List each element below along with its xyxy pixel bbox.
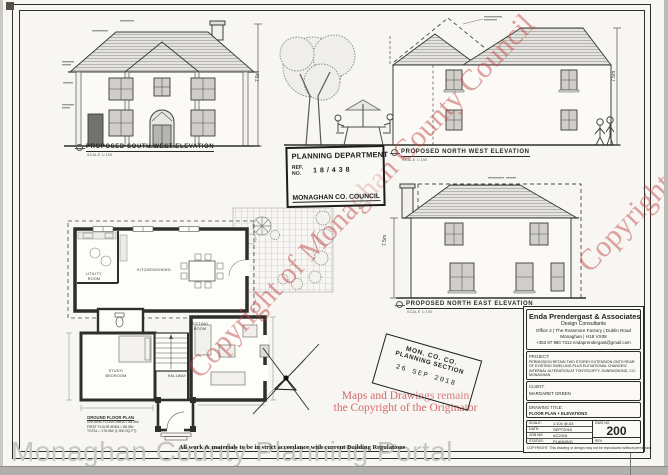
ne-elevation-caption: PROPOSED NORTH EAST ELEVATION bbox=[396, 301, 533, 309]
meta-label: DATE: bbox=[529, 427, 553, 431]
sw-elevation-label: PROPOSED SOUTH WEST ELEVATION bbox=[86, 144, 214, 152]
tree-icon bbox=[280, 35, 355, 100]
company-address1: Office 2 | The Rossmore Factory | Dublin… bbox=[529, 328, 638, 333]
client-label: CLIENT: bbox=[529, 384, 638, 389]
drawing-title-label: DRAWING TITLE: bbox=[529, 405, 638, 410]
stamp-ref-number: 18/438 bbox=[313, 167, 353, 175]
project-label: PROJECT: bbox=[529, 354, 638, 359]
title-block: Enda Prendergast & Associates Design Con… bbox=[523, 306, 644, 453]
drawing-title-text: FLOOR PLAN + ELEVATIONS bbox=[529, 411, 638, 416]
ne-elevation-label: PROPOSED NORTH EAST ELEVATION bbox=[406, 301, 533, 309]
project-description: PERMISSION RETAIN TWO STOREY EXTENSION O… bbox=[529, 360, 638, 378]
meta-value: SEPT2018 bbox=[553, 427, 572, 432]
nw-elevation-label: PROPOSED NORTH WEST ELEVATION bbox=[401, 149, 530, 157]
drawing-sheet: PROPOSED SOUTH WEST ELEVATION SCALE 1:10… bbox=[3, 0, 664, 466]
nw-elevation-caption: PROPOSED NORTH WEST ELEVATION bbox=[391, 149, 530, 157]
meta-label: STATUS: bbox=[529, 439, 553, 443]
building-regs-note: All work & materials to be in strict acc… bbox=[161, 444, 423, 451]
room-label-hallway: HALLWAY bbox=[161, 374, 193, 379]
title-block-project: PROJECT: PERMISSION RETAIN TWO STOREY EX… bbox=[526, 351, 641, 380]
datum-icon bbox=[396, 301, 403, 308]
north-west-elevation-drawing bbox=[278, 12, 623, 162]
title-block-company: Enda Prendergast & Associates Design Con… bbox=[526, 309, 641, 350]
company-name: Enda Prendergast & Associates bbox=[529, 312, 638, 321]
copyright-notice: Maps and Drawings remain the Copyright o… bbox=[303, 390, 508, 414]
room-label-study: STUDY/ BEDROOM bbox=[100, 369, 132, 378]
plan-caption-line: TOTAL = 176.5M² (1,900 SQ.FT) bbox=[87, 429, 157, 434]
drawing-number-cell: DWG NO. 200 bbox=[593, 421, 640, 438]
title-block-drawing-title: DRAWING TITLE: FLOOR PLAN + ELEVATIONS bbox=[526, 402, 641, 418]
south-west-elevation-drawing bbox=[62, 18, 262, 148]
scan-corner-mark bbox=[6, 2, 14, 10]
datum-icon bbox=[76, 144, 83, 151]
ground-floor-plan-caption: GROUND FLOOR PLAN GROUND FLOOR AREA = 88… bbox=[87, 415, 157, 434]
copyright-notice-line2: the Copyright of the Originator bbox=[303, 402, 508, 414]
stamp-council-name: MONAGHAN CO. COUNCIL bbox=[292, 193, 380, 203]
company-subtitle: Design Consultants bbox=[529, 321, 638, 327]
picnic-table-icon bbox=[335, 100, 393, 145]
datum-icon bbox=[391, 149, 398, 156]
portal-watermark: Monaghan County Planning Portal bbox=[11, 436, 453, 466]
company-contact: +353 87 980 7312 endaprendergast@gmail.c… bbox=[529, 340, 638, 345]
sw-elevation-scale: SCALE 1:100 bbox=[87, 153, 113, 157]
room-label-utility: UTILITY ROOM bbox=[83, 272, 105, 281]
meta-value: AC2018 bbox=[553, 433, 567, 438]
stamp-title: PLANNING DEPARTMENT bbox=[287, 147, 382, 161]
ne-elevation-scale: SCALE 1:100 bbox=[407, 310, 433, 314]
nw-elevation-scale: SCALE 1:100 bbox=[402, 158, 428, 162]
north-east-elevation-drawing bbox=[388, 175, 623, 310]
planning-department-stamp: PLANNING DEPARTMENT REF. NO. 18/438 MONA… bbox=[285, 145, 385, 208]
drawing-number-value: 200 bbox=[593, 425, 640, 437]
stamp-ref-label: REF. NO. bbox=[292, 166, 303, 178]
revision-cell: REV. bbox=[593, 438, 640, 444]
meta-value: 1:100 @ A3 bbox=[553, 421, 573, 426]
company-address2: Monaghan | H18 VX08 bbox=[529, 334, 638, 339]
title-block-client: CLIENT: MARGARET GREEN bbox=[526, 381, 641, 400]
room-label-kitchen: KITCHEN/DINING bbox=[123, 268, 185, 273]
parasol-icon bbox=[253, 217, 271, 235]
nw-height-dimension: 7.5m bbox=[611, 71, 617, 82]
scanned-drawing-sheet: PROPOSED SOUTH WEST ELEVATION SCALE 1:10… bbox=[0, 0, 668, 475]
sw-elevation-caption: PROPOSED SOUTH WEST ELEVATION bbox=[76, 144, 214, 152]
meta-label: JOB NO: bbox=[529, 433, 553, 437]
meta-label: SCALE: bbox=[529, 421, 553, 425]
scan-edge bbox=[0, 466, 668, 475]
title-block-meta: SCALE:1:100 @ A3 DATE:SEPT2018 JOB NO:AC… bbox=[526, 420, 641, 445]
room-label-sitting: SITTING ROOM bbox=[188, 322, 212, 331]
meta-value: PLANNING bbox=[553, 439, 573, 444]
title-block-copyright: COPYRIGHT: This drawing or design may no… bbox=[526, 446, 641, 450]
sw-height-dimension: 7.5m bbox=[255, 71, 261, 82]
scan-edge bbox=[664, 0, 668, 466]
client-name: MARGARET GREEN bbox=[529, 391, 638, 396]
ne-height-dimension: 7.5m bbox=[382, 235, 388, 246]
